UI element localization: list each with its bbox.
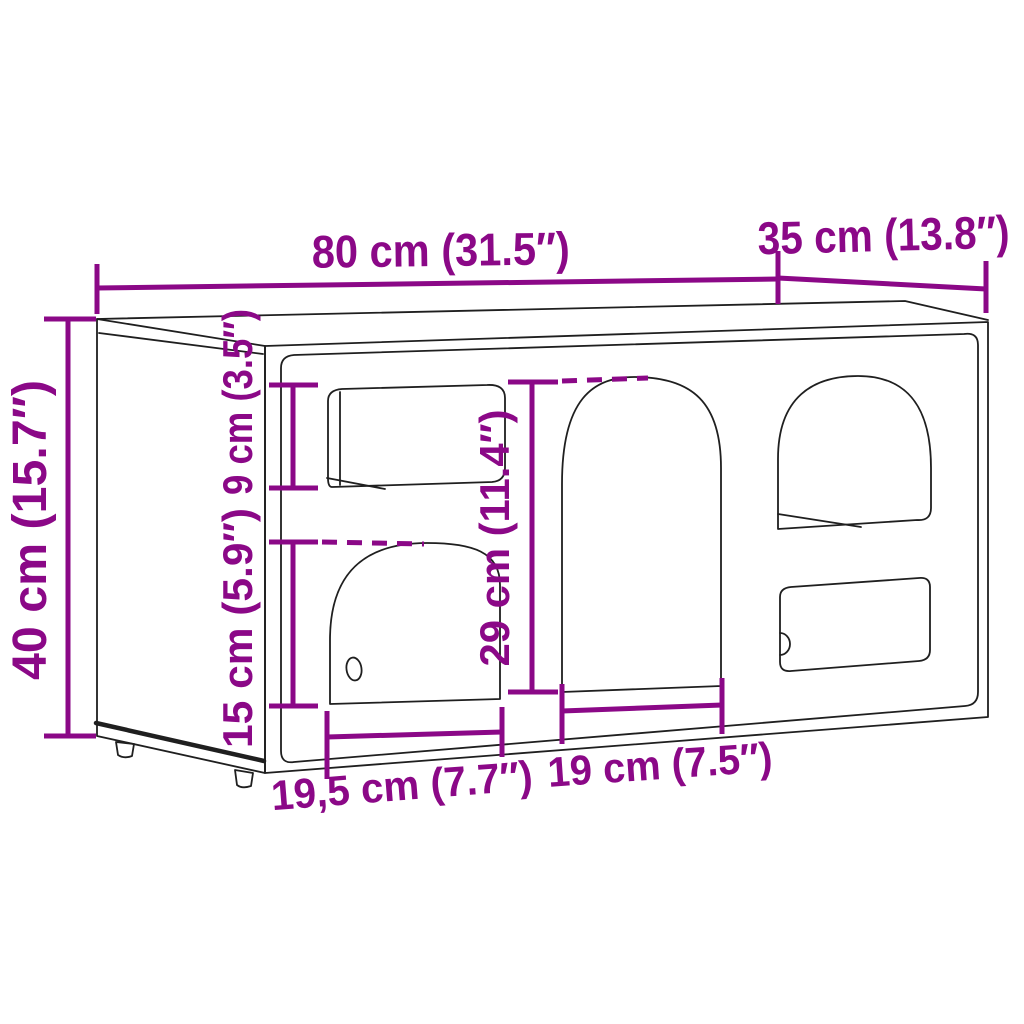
panel-bottom-right-door [780,578,930,671]
door-handle-notch [780,633,790,655]
furniture-dimension-diagram: 80 cm (31.5″) 35 cm (13.8″) 40 cm (15.7″… [0,0,1024,1024]
label-height-40: 40 cm (15.7″) [4,380,57,680]
label-top-opening-9: 9 cm (3.5″) [214,309,261,495]
line [97,279,778,288]
label-middle-arch-width-19: 19 cm (7.5″) [546,733,774,796]
line [327,732,502,737]
dimension-middle-arch-width-19 [562,678,722,744]
line [562,705,722,711]
front-panel [265,322,988,773]
extension-dashed-line [562,378,648,381]
line [778,278,986,289]
foot-left [116,742,134,757]
label-left-arch-width-19-5: 19,5 cm (7.7″) [269,752,534,819]
extension-dashed-line [322,542,424,544]
diagram-canvas: 80 cm (31.5″) 35 cm (13.8″) 40 cm (15.7″… [0,0,1024,1024]
label-left-arch-height-15: 15 cm (5.9″) [214,508,261,748]
label-middle-arch-height-29: 29 cm (11.4″) [471,410,518,667]
label-depth-35: 35 cm (13.8″) [757,206,1010,265]
foot-front [235,770,253,787]
dimension-left-arch-height-15 [269,542,424,706]
opening-middle-arch [562,377,721,692]
label-width-80: 80 cm (31.5″) [311,222,570,278]
door-handle-hole [345,657,363,682]
opening-top-right-arch-sill-line [778,514,861,527]
dimension-middle-arch-height-29 [508,378,648,692]
opening-top-right-arch [778,376,931,529]
dimension-top-opening-9 [269,385,318,488]
